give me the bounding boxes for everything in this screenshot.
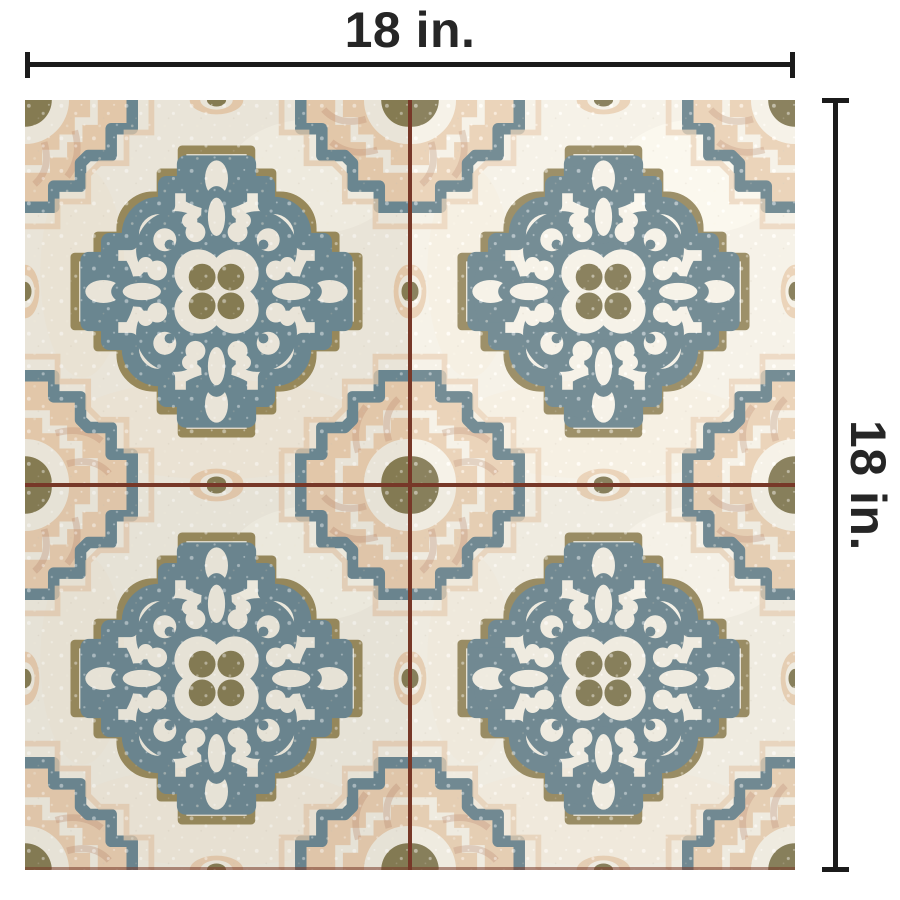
bottom-grout-edge [25, 867, 795, 870]
tile-product-photo [25, 100, 795, 870]
height-dimension-label: 18 in. [841, 100, 895, 870]
product-dimension-image: 18 in. 18 in. [0, 0, 900, 900]
width-dimension-line [27, 62, 793, 67]
width-dimension-label: 18 in. [27, 5, 793, 55]
width-dimension-cap-right [790, 52, 795, 78]
tile-quadrant-4 [368, 443, 795, 870]
tile-quadrant-3 [25, 443, 452, 870]
tile-quadrant-1 [25, 100, 452, 527]
height-dimension-cap-bottom [822, 867, 849, 872]
tile-quadrant-2 [368, 100, 795, 527]
height-dimension-line [833, 100, 838, 870]
height-dimension-cap-top [822, 98, 849, 103]
tile-photo-svg [25, 100, 795, 870]
width-dimension-cap-left [25, 52, 30, 78]
